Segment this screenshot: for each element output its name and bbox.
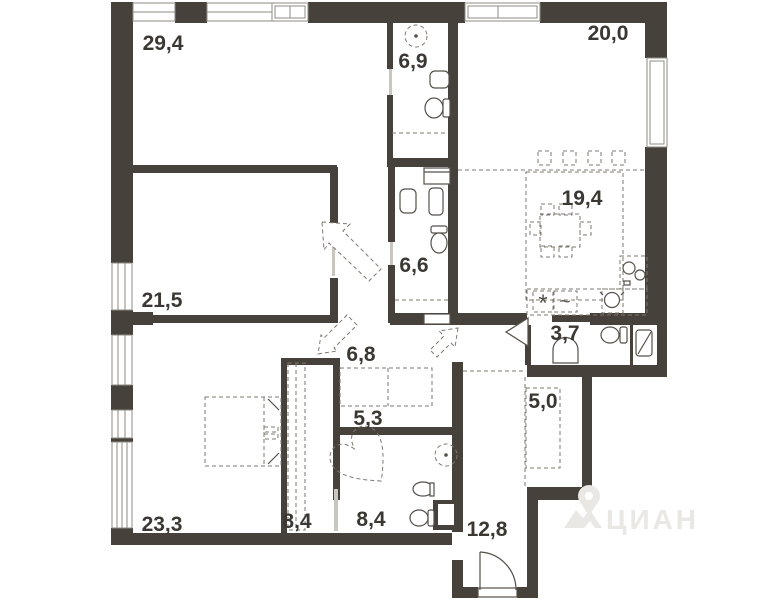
closet-5-3-outline <box>340 368 432 406</box>
cabinet-bathroom-middle <box>429 188 443 215</box>
sink-bathroom-bottom <box>413 482 434 496</box>
toilet-bathroom-middle <box>431 226 447 253</box>
peaks-icon <box>564 510 602 528</box>
room-label-wardrobe: 8,4 <box>282 510 312 533</box>
room-label-bedroom-bottom: 23,3 <box>142 513 183 536</box>
room-label-bedroom-left: 21,5 <box>142 289 183 312</box>
entrance-door <box>478 552 517 597</box>
window-top-living <box>207 3 272 21</box>
window-left-3 <box>112 410 132 438</box>
room-label-bathroom-mid: 6,6 <box>399 254 428 277</box>
bar-stool <box>538 151 551 165</box>
window-right-wall <box>647 58 667 147</box>
room-label-bedroom-right: 20,0 <box>588 22 629 45</box>
room-label-hall-upper: 6,8 <box>346 343 376 366</box>
floor-plan: 29,4 6,9 20,0 19,4 21,5 6,6 3,7 6,8 5,3 … <box>0 0 779 600</box>
window-top-right-room <box>465 3 540 21</box>
room-label-hallway: 12,8 <box>467 518 508 541</box>
downlight-bathroom-top <box>405 25 427 47</box>
bed <box>205 397 281 466</box>
cian-watermark: ЦИАН <box>564 485 699 535</box>
room-label-wc: 3,7 <box>550 322 579 345</box>
toilet-wc <box>601 327 627 343</box>
watermark-brand: ЦИАН <box>606 504 699 535</box>
appliance-box <box>424 314 450 324</box>
washing-machine <box>424 168 450 184</box>
balcony-door-top <box>272 3 308 21</box>
bar-stool <box>563 151 576 165</box>
arrow-to-living <box>322 222 381 281</box>
sink-bathroom-top <box>430 71 449 88</box>
door-post-wardrobe <box>334 489 338 531</box>
furniture-dashed <box>205 25 647 530</box>
door-posts <box>332 69 393 531</box>
door-post-bathroom-top <box>389 69 392 95</box>
dining-table <box>530 204 591 257</box>
window-left-1 <box>112 263 132 310</box>
room-label-living: 29,4 <box>143 32 184 55</box>
water-heater-niche <box>636 330 652 356</box>
room-label-bathroom-top: 6,9 <box>398 50 427 73</box>
doors <box>478 318 528 597</box>
door-post-bathroom-middle <box>390 242 393 265</box>
shaft-opening <box>438 504 454 525</box>
wardrobe-rail <box>288 363 305 530</box>
window-left-2 <box>112 335 132 385</box>
arrow-to-kitchen <box>430 328 458 357</box>
floor-plan-drawing: 29,4 6,9 20,0 19,4 21,5 6,6 3,7 6,8 5,3 … <box>0 0 779 600</box>
window-top-left <box>133 3 175 21</box>
bar-stool <box>588 151 601 165</box>
toilet-bathroom-top <box>425 98 450 118</box>
room-label-kitchen: 19,4 <box>562 187 603 210</box>
room-label-bathroom-btm: 8,4 <box>356 508 386 531</box>
window-left-4 <box>112 442 132 528</box>
room-label-closet-50: 5,0 <box>528 390 557 413</box>
sink-bathroom-middle <box>400 189 416 213</box>
room-label-closet-53: 5,3 <box>353 407 382 430</box>
toilet-bathroom-bottom <box>410 510 434 526</box>
room-labels: 29,4 6,9 20,0 19,4 21,5 6,6 3,7 6,8 5,3 … <box>142 22 629 541</box>
fridge-symbol: * <box>538 290 547 317</box>
washer-symbol: ~ <box>559 292 570 313</box>
bar-stool <box>612 151 625 165</box>
kitchen-sink <box>623 262 645 285</box>
